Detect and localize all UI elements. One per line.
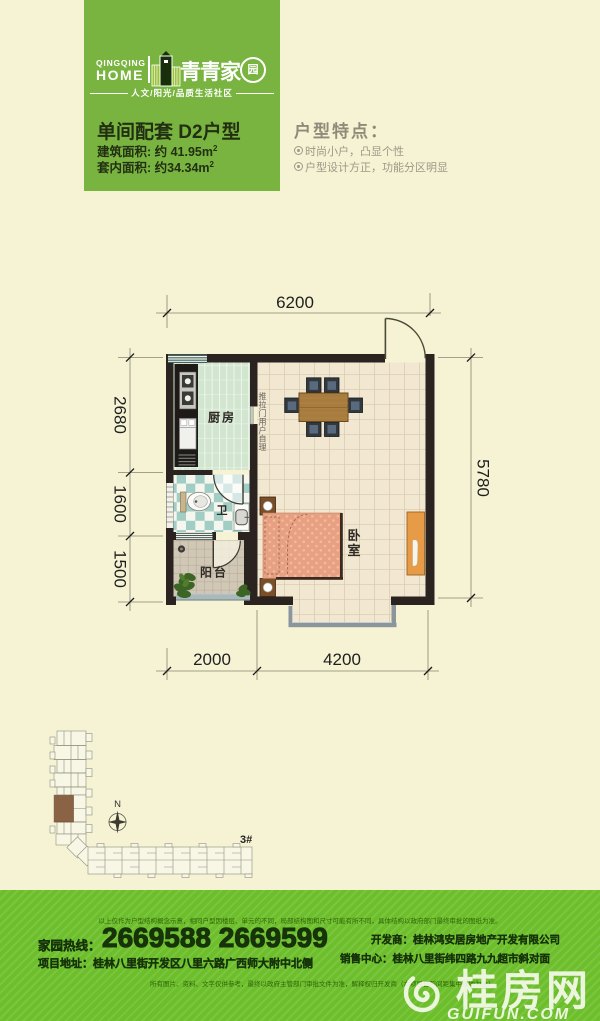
svg-text:自: 自 <box>259 434 267 444</box>
svg-text:卫: 卫 <box>217 504 228 517</box>
svg-text:室: 室 <box>347 543 360 558</box>
svg-text:4200: 4200 <box>323 650 361 669</box>
svg-text:6200: 6200 <box>276 293 314 312</box>
svg-text:N: N <box>114 799 121 810</box>
svg-text:卧: 卧 <box>347 528 360 543</box>
svg-text:1600: 1600 <box>111 485 130 523</box>
svg-text:2680: 2680 <box>111 396 130 434</box>
svg-text:5780: 5780 <box>474 459 493 497</box>
svg-text:GUIFUN.COM: GUIFUN.COM <box>447 1006 570 1021</box>
svg-text:1500: 1500 <box>111 550 130 588</box>
svg-text:户: 户 <box>259 425 267 435</box>
svg-text:门: 门 <box>259 408 267 418</box>
svg-text:推: 推 <box>259 391 267 401</box>
svg-text:3#: 3# <box>240 834 252 846</box>
svg-text:拉: 拉 <box>259 400 267 410</box>
svg-text:厨房: 厨房 <box>208 410 236 425</box>
svg-text:2000: 2000 <box>193 650 231 669</box>
svg-text:阳台: 阳台 <box>200 565 228 580</box>
svg-text:理: 理 <box>259 443 267 452</box>
